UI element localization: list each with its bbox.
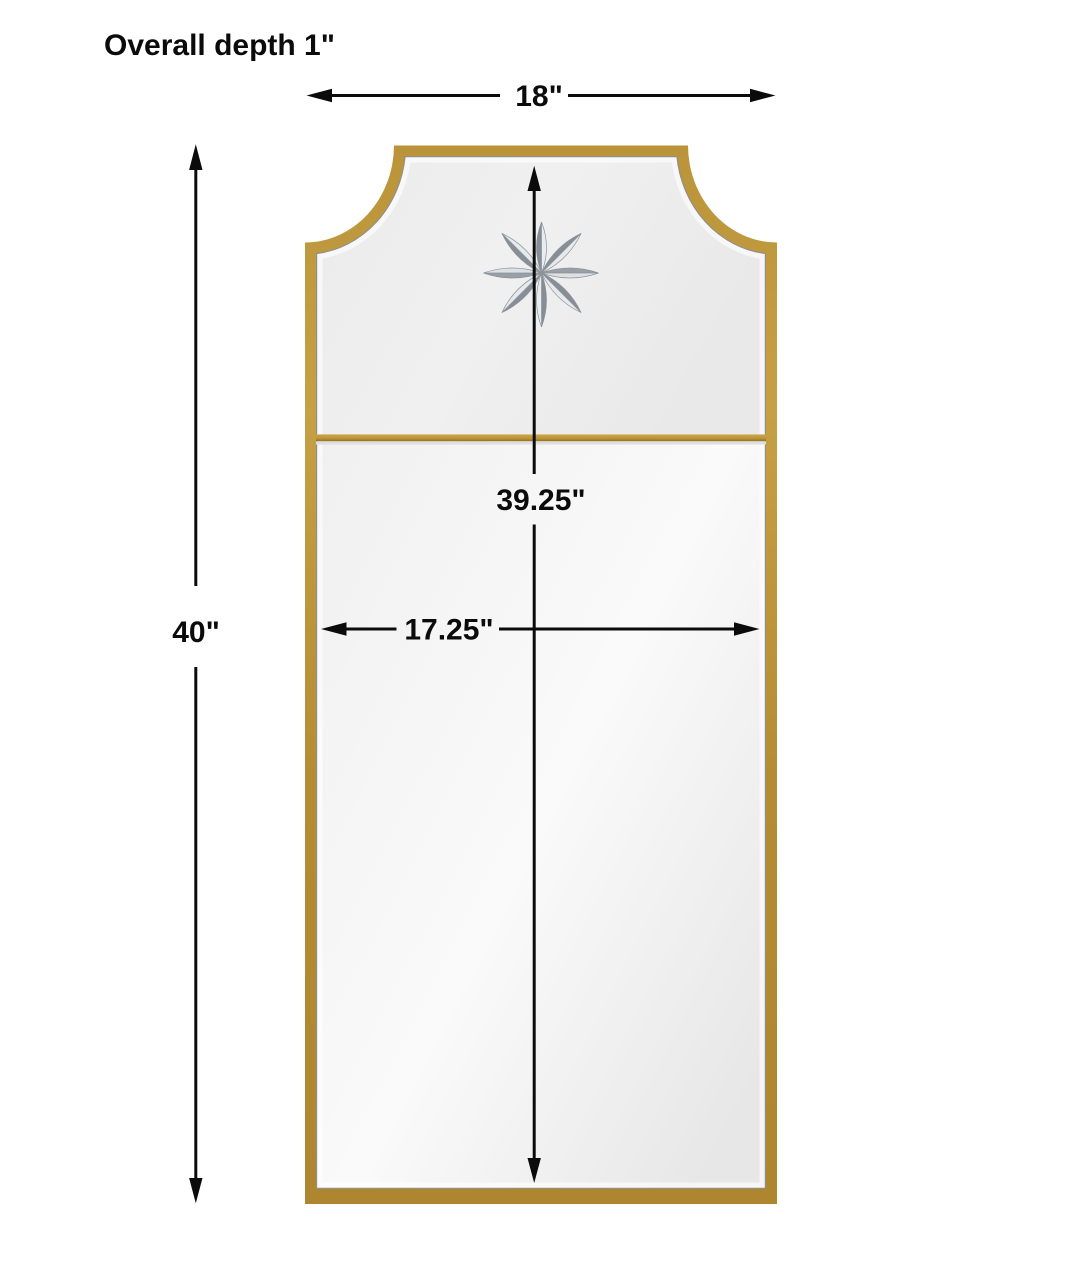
svg-text:17.25": 17.25" bbox=[404, 614, 493, 647]
svg-text:39.25": 39.25" bbox=[496, 484, 585, 517]
svg-text:18": 18" bbox=[515, 80, 563, 113]
svg-text:40": 40" bbox=[172, 616, 220, 649]
svg-text:Overall depth 1": Overall depth 1" bbox=[104, 29, 335, 62]
